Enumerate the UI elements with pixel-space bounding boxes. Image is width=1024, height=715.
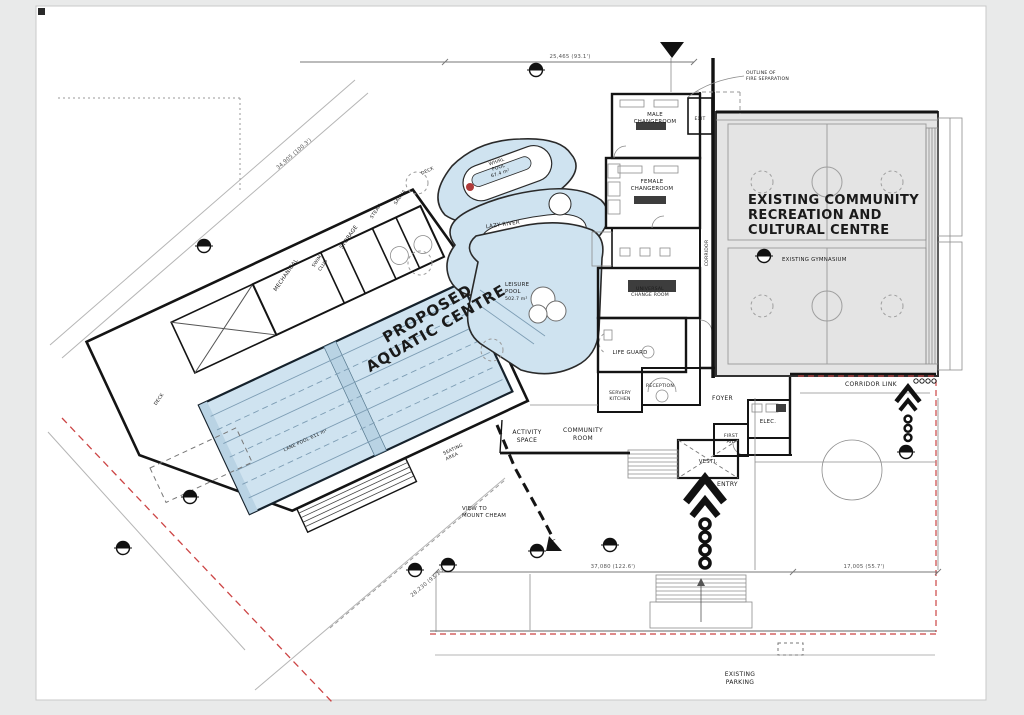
vesti-label: VESTI. (699, 459, 718, 465)
female-label2: CHANGEROOM (631, 186, 674, 192)
first-aid-label2: AID (727, 439, 736, 445)
exit-label: EXIT (694, 116, 705, 122)
activity-label2: SPACE (517, 437, 538, 444)
first-aid-label: FIRST (724, 433, 738, 439)
parking-label2: PARKING (726, 679, 755, 686)
whirl-feature-dot (466, 183, 474, 191)
activity-label: ACTIVITY (512, 429, 541, 436)
sheet-corner-mark (38, 8, 45, 15)
fire-label2: FIRE SEPARATION (746, 76, 789, 82)
elec-label: ELEC. (760, 419, 777, 425)
leisure-area-label: 502.7 m² (505, 296, 528, 302)
male-label: MALE (647, 112, 663, 118)
corridor-link-label: CORRIDOR LINK (845, 381, 898, 388)
view-label: VIEW TO (462, 506, 487, 512)
corridor-label: CORRIDOR (704, 239, 710, 266)
view-label2: MOUNT CHEAM (462, 513, 506, 519)
leisure-label2: POOL (505, 289, 521, 295)
universal-label2: CHANGE ROOM (631, 292, 669, 298)
bench (634, 196, 666, 204)
gymnasium-label: EXISTING GYMNASIUM (782, 257, 847, 263)
foyer-label: FOYER (712, 395, 733, 402)
floor-plan-page: LANE POOL 611 m² (0, 0, 1024, 715)
existing-centre (716, 112, 962, 376)
servery-label: SERVERY (609, 390, 631, 396)
life-guard-label: LIFE GUARD (612, 350, 647, 356)
existing-title-line3: CULTURAL CENTRE (748, 223, 890, 238)
parking-label: EXISTING (725, 671, 756, 678)
reception-label: RECEPTION (646, 383, 674, 389)
female-label: FEMALE (641, 179, 664, 185)
site-plan-drawing: LANE POOL 611 m² (0, 0, 1024, 715)
universal-label: UNIVERSAL (636, 286, 664, 292)
entry-label: ENTRY (717, 481, 738, 488)
leisure-label: LEISURE (505, 282, 530, 288)
dim-plaza: 37,080 (122.6') (591, 564, 636, 570)
dim-top: 25,465 (93.1') (549, 54, 590, 60)
male-label2: CHANGEROOM (634, 119, 677, 125)
servery-label2: KITCHEN (609, 396, 630, 402)
existing-title-line2: RECREATION AND (748, 208, 882, 223)
spa-circle (549, 193, 571, 215)
existing-title-line1: EXISTING COMMUNITY (748, 193, 919, 208)
dim-plaza-east: 17,005 (55.7') (843, 564, 884, 570)
community-label: COMMUNITY (563, 427, 603, 434)
community-label2: ROOM (573, 435, 593, 442)
fire-label: OUTLINE OF (746, 70, 776, 76)
